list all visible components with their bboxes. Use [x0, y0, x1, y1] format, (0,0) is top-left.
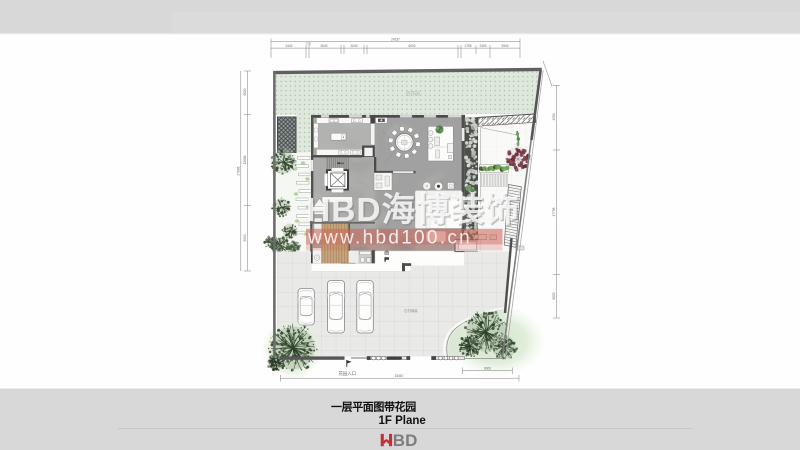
svg-text:后花园: 后花园	[406, 90, 420, 97]
svg-text:23467: 23467	[395, 374, 404, 378]
svg-text:一层平面图带花园: 一层平面图带花园	[331, 400, 416, 414]
svg-text:花园入口: 花园入口	[339, 370, 357, 377]
svg-text:HBD海博装饰: HBD海博装饰	[306, 192, 520, 229]
svg-text:6000: 6000	[408, 44, 415, 48]
svg-text:2400: 2400	[479, 44, 486, 48]
svg-text:12606: 12606	[243, 155, 247, 164]
svg-text:石材铺装: 石材铺装	[404, 308, 418, 313]
svg-text:775: 775	[305, 42, 311, 46]
svg-text:24237: 24237	[391, 38, 400, 42]
svg-text:BD: BD	[393, 431, 418, 450]
svg-text:2440: 2440	[285, 44, 292, 48]
svg-text:2040: 2040	[350, 44, 357, 48]
svg-text:6000: 6000	[552, 292, 556, 299]
svg-text:17738: 17738	[552, 207, 556, 216]
svg-text:1F Plane: 1F Plane	[379, 415, 426, 427]
svg-text:4500: 4500	[552, 113, 556, 120]
svg-text:6000: 6000	[243, 88, 247, 95]
svg-text:1755: 1755	[464, 44, 471, 48]
svg-text:27606: 27606	[237, 166, 241, 175]
svg-text:www.hbd100.cn: www.hbd100.cn	[307, 227, 472, 248]
svg-text:2940: 2940	[501, 44, 508, 48]
svg-text:9050: 9050	[243, 234, 247, 241]
svg-text:6000: 6000	[484, 367, 491, 371]
svg-text:3040: 3040	[320, 44, 327, 48]
